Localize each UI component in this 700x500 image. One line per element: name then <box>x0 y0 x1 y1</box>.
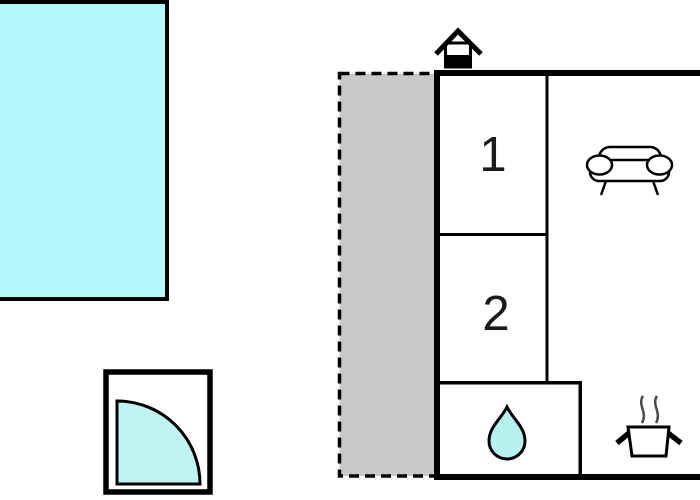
pot-handle-left <box>617 433 629 443</box>
room-2-label: 2 <box>482 287 509 341</box>
sofa-armrest-right <box>647 156 672 175</box>
steam-line-left <box>641 396 644 423</box>
wall-bottom <box>434 474 700 480</box>
wall-rooms-living <box>546 76 549 384</box>
sofa-armrest-left <box>587 156 612 175</box>
pot-body <box>628 427 669 456</box>
wall-between-room1-room2 <box>440 233 548 236</box>
steam-line-right <box>655 396 658 423</box>
sofa-leg-right <box>653 181 658 195</box>
sofa-leg-left <box>601 181 606 195</box>
room-1-label: 1 <box>479 128 506 182</box>
pot-handle-right <box>668 433 681 443</box>
pool-rectangle <box>0 2 167 299</box>
house-door-block <box>445 55 472 67</box>
door-swing-box <box>106 372 210 492</box>
water-drop-icon <box>489 407 525 459</box>
floor-plan: 1 2 <box>340 31 700 480</box>
house-icon <box>436 31 481 67</box>
wall-left <box>434 70 440 480</box>
wall-top <box>434 70 700 76</box>
wall-bathroom-top <box>440 381 581 385</box>
terrace-area <box>340 74 437 477</box>
floor-plan-page: 1 2 <box>0 0 700 500</box>
floor-plan-drawing: 1 2 <box>0 0 700 500</box>
cooking-pot-icon <box>617 396 681 456</box>
sofa-icon <box>587 147 672 195</box>
wall-bathroom-right <box>579 381 583 474</box>
